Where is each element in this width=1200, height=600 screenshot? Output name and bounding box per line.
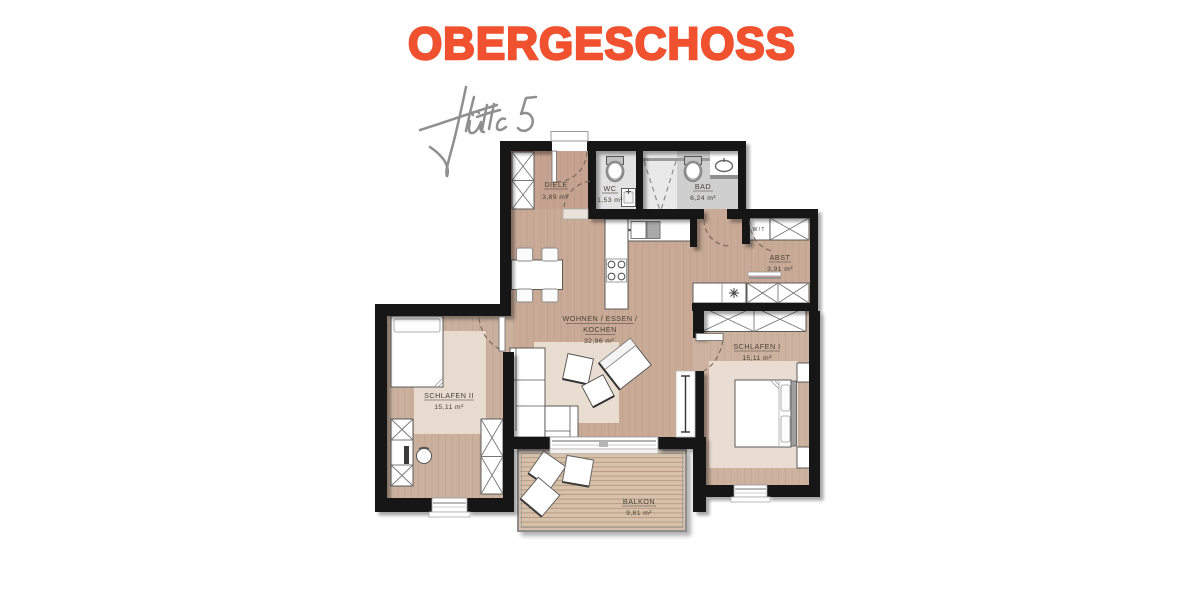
svg-text:OBERGESCHOSS: OBERGESCHOSS: [408, 18, 796, 69]
svg-text:WC: WC: [604, 184, 617, 193]
svg-text:3,89 m²: 3,89 m²: [542, 194, 568, 201]
svg-text:1,53 m²: 1,53 m²: [597, 197, 623, 204]
svg-text:SCHLAFEN II: SCHLAFEN II: [424, 391, 474, 400]
svg-text:ABST: ABST: [770, 253, 791, 262]
svg-text:DIELE: DIELE: [544, 180, 567, 189]
svg-text:BAD: BAD: [695, 182, 711, 191]
svg-text:WOHNEN / ESSEN /: WOHNEN / ESSEN /: [562, 314, 637, 323]
svg-text:15,11 m²: 15,11 m²: [742, 355, 772, 362]
svg-text:32,96 m²: 32,96 m²: [584, 338, 614, 345]
svg-text:9,81 m²: 9,81 m²: [626, 510, 652, 517]
svg-text:SCHLAFEN I: SCHLAFEN I: [733, 342, 780, 351]
svg-text:6,24 m²: 6,24 m²: [690, 195, 716, 202]
svg-text:BALKON: BALKON: [623, 497, 655, 506]
svg-text:15,11 m²: 15,11 m²: [434, 404, 464, 411]
svg-text:KOCHEN: KOCHEN: [583, 325, 617, 334]
svg-text:3,91 m²: 3,91 m²: [767, 266, 793, 273]
svg-text:W / T: W / T: [753, 227, 765, 233]
